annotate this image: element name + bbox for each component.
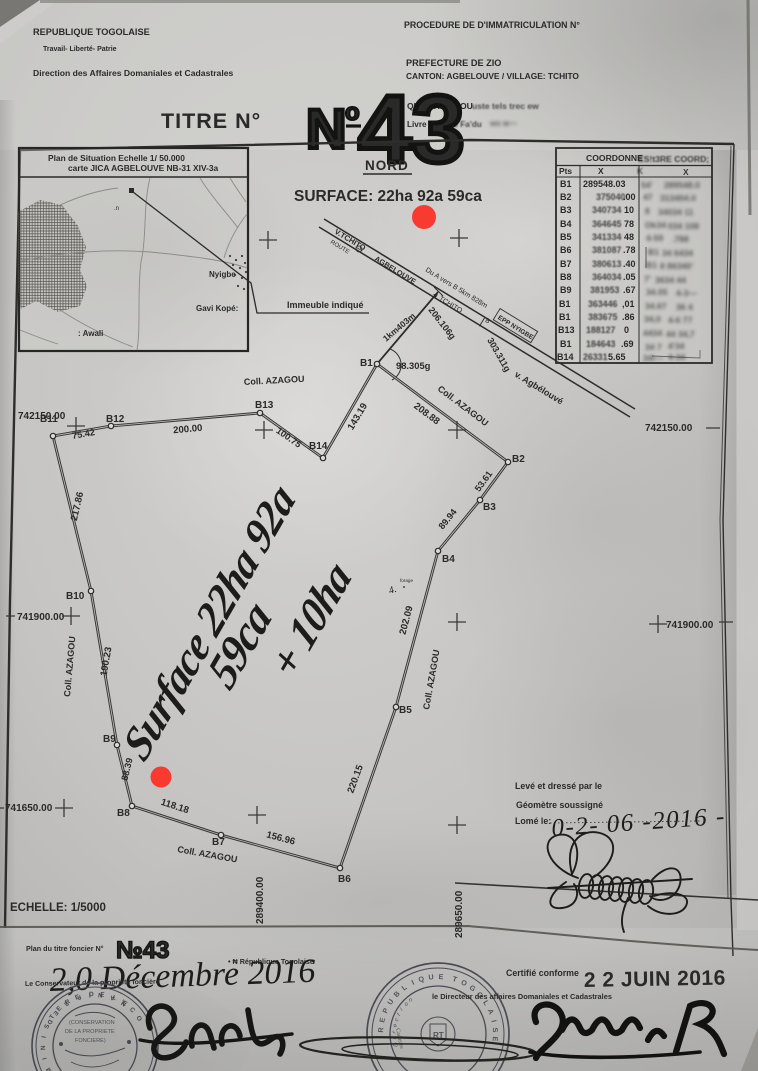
svg-text:289548.0: 289548.0 <box>664 180 700 190</box>
svg-text:.n: .n <box>114 206 119 212</box>
svg-text:Levé et dressé par le: Levé et dressé par le <box>515 781 602 791</box>
svg-text:188127: 188127 <box>586 325 615 335</box>
svg-text:34.05: 34.05 <box>646 287 668 297</box>
svg-text:uste tels trec ew: uste tels trec ew <box>472 101 539 111</box>
svg-text:B1: B1 <box>559 299 571 309</box>
svg-text:N: N <box>40 1045 47 1050</box>
svg-text:ËS!t3RE COORD;: ËS!t3RE COORD; <box>638 154 709 164</box>
svg-text:B1: B1 <box>560 339 572 349</box>
svg-text:B13: B13 <box>558 325 575 335</box>
svg-text:.69: .69 <box>621 339 634 349</box>
svg-text:B3: B3 <box>483 502 496 513</box>
svg-text:34 7: 34 7 <box>645 342 662 352</box>
svg-text:34 6434: 34 6434 <box>662 248 693 258</box>
svg-text:383675: 383675 <box>588 312 617 322</box>
svg-text:48: 48 <box>624 232 634 242</box>
svg-text:34,0: 34,0 <box>644 314 661 324</box>
svg-text:PREFECTURE DE ZIO: PREFECTURE DE ZIO <box>406 58 501 68</box>
svg-text:COORDONNE: COORDONNE <box>586 153 643 163</box>
svg-text:B3: B3 <box>560 205 572 215</box>
svg-text:Travail- Liberté- Patrie: Travail- Liberté- Patrie <box>43 46 117 53</box>
svg-text:B14: B14 <box>309 441 328 452</box>
svg-text:5.65: 5.65 <box>608 352 626 362</box>
svg-text:B5: B5 <box>560 232 572 242</box>
svg-text:U: U <box>428 972 434 982</box>
svg-text:Gavi Kopé:: Gavi Kopé: <box>196 304 238 313</box>
svg-text:Direction des Affaires Domania: Direction des Affaires Domaniales et Cad… <box>33 68 233 78</box>
svg-text:X: X <box>683 167 689 177</box>
svg-text:4434: 4434 <box>643 328 662 338</box>
svg-text:363446: 363446 <box>588 299 617 309</box>
svg-text:N: N <box>306 97 346 160</box>
svg-text:B2: B2 <box>560 192 572 202</box>
svg-text:B6: B6 <box>338 874 351 885</box>
svg-text:B6: B6 <box>560 245 572 255</box>
svg-text:NORD: NORD <box>365 158 409 173</box>
svg-text:4'34: 4'34 <box>668 341 685 351</box>
svg-text:184643: 184643 <box>586 339 615 349</box>
svg-text:741900.00: 741900.00 <box>17 612 65 623</box>
svg-text:ECHELLE: 1/5000: ECHELLE: 1/5000 <box>10 902 106 914</box>
svg-text:36 4: 36 4 <box>676 302 693 312</box>
svg-text:2 2 JUIN 2016: 2 2 JUIN 2016 <box>584 967 726 992</box>
svg-text:381087: 381087 <box>592 245 621 255</box>
svg-text:364645: 364645 <box>592 219 621 229</box>
svg-text:742150.00: 742150.00 <box>645 423 693 434</box>
svg-text:289400.00: 289400.00 <box>255 876 266 924</box>
svg-text:.00: .00 <box>623 192 636 202</box>
svg-text:ws w—: ws w— <box>489 119 517 128</box>
svg-text:4-6 77: 4-6 77 <box>668 315 693 325</box>
svg-text:.78: .78 <box>623 245 636 255</box>
svg-text:.788: .788 <box>672 234 689 244</box>
svg-text:4-3—: 4-3— <box>676 288 697 298</box>
svg-text:7': 7' <box>644 274 651 284</box>
svg-text:Plan du titre foncier N°: Plan du titre foncier N° <box>26 944 104 953</box>
svg-text:289650.00: 289650.00 <box>454 890 465 938</box>
svg-text:Certifié conforme: Certifié conforme <box>506 968 579 978</box>
svg-text:375040: 375040 <box>596 192 625 202</box>
svg-text:B1: B1 <box>648 247 659 257</box>
svg-text:0: 0 <box>624 325 629 335</box>
svg-text:le Directeur des affaires Doma: le Directeur des affaires Domaniales et … <box>432 992 612 1001</box>
svg-text:.67: .67 <box>623 285 636 295</box>
svg-text:340734: 340734 <box>592 205 621 215</box>
svg-text:741900.00: 741900.00 <box>666 620 714 631</box>
svg-text:44 34,7: 44 34,7 <box>666 329 695 339</box>
svg-text:78: 78 <box>624 219 634 229</box>
svg-text:B9: B9 <box>560 285 572 295</box>
svg-text:TITRE N°: TITRE N° <box>161 109 261 133</box>
svg-text:4-59: 4-59 <box>646 233 663 243</box>
svg-text:381953: 381953 <box>590 285 619 295</box>
svg-text:K: K <box>637 166 643 176</box>
svg-text:B2: B2 <box>512 454 525 465</box>
svg-text:Immeuble indiqué: Immeuble indiqué <box>287 300 364 310</box>
svg-text:.40: .40 <box>623 259 636 269</box>
svg-text:B7: B7 <box>560 259 572 269</box>
svg-text:Géomètre soussigné: Géomètre soussigné <box>516 800 603 810</box>
svg-text:B5: B5 <box>399 705 412 716</box>
svg-text:034 108: 034 108 <box>668 221 699 231</box>
svg-text:B8: B8 <box>560 272 572 282</box>
svg-text:Lomé le:: Lomé le: <box>515 816 551 826</box>
svg-text:(CONSERVATION: (CONSERVATION <box>69 1020 115 1026</box>
svg-text:.05: .05 <box>623 272 636 282</box>
svg-text:741650.00: 741650.00 <box>5 803 53 814</box>
svg-text:Nyigbe: Nyigbe <box>209 270 236 279</box>
svg-text:47: 47 <box>643 192 653 202</box>
svg-text:54': 54' <box>641 180 653 190</box>
svg-text:98.305g: 98.305g <box>396 360 431 371</box>
svg-text:B7: B7 <box>212 837 225 848</box>
svg-text:26331: 26331 <box>583 352 608 362</box>
svg-text:carte JICA AGBELOUVE NB-31 XI: carte JICA AGBELOUVE NB-31 XIV-3a <box>68 163 219 173</box>
svg-text:E: E <box>438 972 443 981</box>
svg-text:B10: B10 <box>66 591 85 602</box>
svg-text:380613: 380613 <box>592 259 621 269</box>
svg-text:DE LA PROPRIETE: DE LA PROPRIETE <box>65 1029 115 1035</box>
svg-text:S: S <box>491 1027 500 1033</box>
svg-text:B4: B4 <box>560 219 572 229</box>
svg-text:REPUBLIQUE TOGOLAISE: REPUBLIQUE TOGOLAISE <box>33 27 150 37</box>
svg-text:B14: B14 <box>557 352 574 362</box>
svg-text:742150.00: 742150.00 <box>18 411 66 422</box>
svg-text:E: E <box>491 1036 500 1042</box>
svg-text:Plan de Situation Echelle 1/ 5: Plan de Situation Echelle 1/ 50.000 <box>48 153 185 163</box>
svg-text:,01: ,01 <box>622 299 635 309</box>
svg-text:SURFACE: 22ha 92a 59ca: SURFACE: 22ha 92a 59ca <box>294 188 482 205</box>
svg-text:X: X <box>598 166 604 176</box>
svg-text:34\—: 34\— <box>643 353 664 363</box>
svg-text:B4: B4 <box>442 554 455 565</box>
svg-text:Pts: Pts <box>559 166 572 176</box>
svg-text:forage: forage <box>400 578 413 583</box>
svg-text:34.67: 34.67 <box>645 301 667 311</box>
svg-text:B8: B8 <box>117 808 130 819</box>
svg-text:PROCEDURE DE D'IMMATRICULATION: PROCEDURE DE D'IMMATRICULATION N° <box>404 20 580 30</box>
svg-text:B1: B1 <box>360 358 373 369</box>
svg-text:8 86340': 8 86340' <box>660 261 693 271</box>
svg-text:341334: 341334 <box>592 232 621 242</box>
svg-text:313404.0: 313404.0 <box>660 193 696 203</box>
svg-text:: Awali: : Awali <box>78 329 103 338</box>
svg-text:B12: B12 <box>106 414 125 425</box>
svg-text:FONCIERE): FONCIERE) <box>75 1038 106 1044</box>
svg-text:3634 44: 3634 44 <box>655 275 686 285</box>
svg-text:Ok34: Ok34 <box>645 220 666 230</box>
svg-text:8: 8 <box>645 206 650 216</box>
svg-text:364034: 364034 <box>592 272 621 282</box>
svg-text:10: 10 <box>624 205 634 215</box>
svg-text:34034 11: 34034 11 <box>658 207 694 217</box>
svg-text:.86: .86 <box>622 312 635 322</box>
svg-text:B1: B1 <box>560 179 572 189</box>
svg-text:B1: B1 <box>559 312 571 322</box>
svg-text:B1: B1 <box>646 260 657 270</box>
svg-text:289548.03: 289548.03 <box>583 179 626 189</box>
svg-text:B13: B13 <box>255 400 274 411</box>
